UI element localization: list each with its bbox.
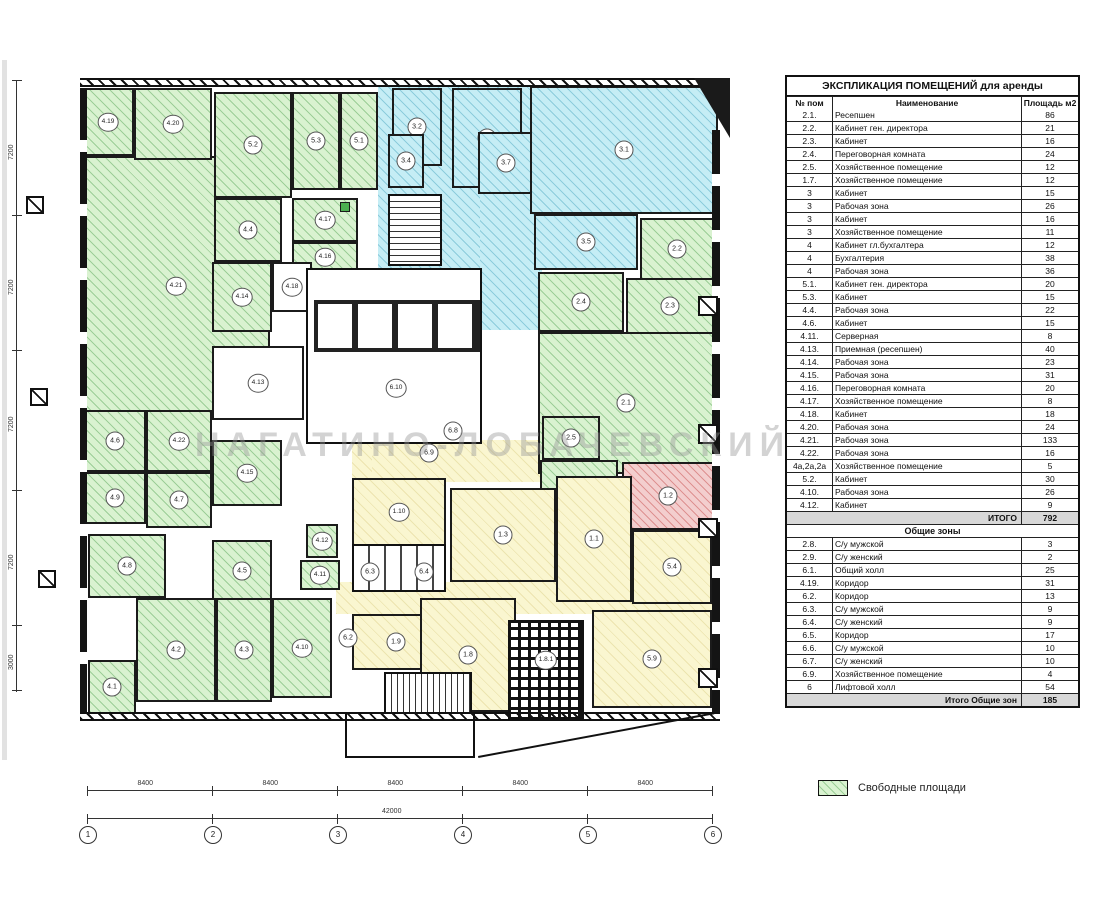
cell-area: 40 — [1022, 343, 1078, 355]
table-row: 6.9.Хозяйственное помещение4 — [787, 667, 1078, 680]
cell-name: Лифтовой холл — [833, 681, 1022, 693]
cell-number: 6 — [787, 681, 833, 693]
cell-area: 10 — [1022, 642, 1078, 654]
cell-name: Рабочая зона — [833, 447, 1022, 459]
dim-line-2 — [87, 818, 713, 819]
cell-number: 4.20. — [787, 421, 833, 433]
dim-tick-left — [12, 690, 22, 691]
cell-area: 8 — [1022, 395, 1078, 407]
cell-area: 24 — [1022, 421, 1078, 433]
cell-area: 25 — [1022, 564, 1078, 576]
dim-segment-label: 8400 — [638, 780, 654, 787]
col-number: № пом — [787, 97, 833, 109]
cell-area: 8 — [1022, 330, 1078, 342]
cell-name: Кабинет — [833, 291, 1022, 303]
dim-tick-left — [12, 490, 22, 491]
cell-name: Кабинет — [833, 473, 1022, 485]
cell-number: 6.9. — [787, 668, 833, 680]
cell-number: 5.3. — [787, 291, 833, 303]
table-row: 4.19.Коридор31 — [787, 576, 1078, 589]
cell-number: 4а,2а,2а — [787, 460, 833, 472]
dim-tick — [337, 786, 338, 796]
cell-number: 3 — [787, 213, 833, 225]
cell-number: 4.4. — [787, 304, 833, 316]
table-row: 4.22.Рабочая зона16 — [787, 446, 1078, 459]
cell-name: С/у женский — [833, 616, 1022, 628]
cell-number: 4.19. — [787, 577, 833, 589]
cell-area: 20 — [1022, 382, 1078, 394]
table-row: 6.6.С/у мужской10 — [787, 641, 1078, 654]
cell-area: 23 — [1022, 356, 1078, 368]
cell-area: 15 — [1022, 317, 1078, 329]
dim-segment-label-left: 7200 — [8, 279, 15, 295]
cell-name: Кабинет гл.бухгалтера — [833, 239, 1022, 251]
cell-name: Рабочая зона — [833, 421, 1022, 433]
table-total-row: Итого Общие зон185 — [787, 693, 1078, 706]
cell-number: 4.13. — [787, 343, 833, 355]
cell-number: 4 — [787, 252, 833, 264]
dim-segment-label: 8400 — [263, 780, 279, 787]
cell-area: 54 — [1022, 681, 1078, 693]
cell-area: 9 — [1022, 603, 1078, 615]
dim-segment-label-left: 7200 — [8, 554, 15, 570]
table-row: 1.7.Хозяйственное помещение12 — [787, 173, 1078, 186]
cell-number: 4.18. — [787, 408, 833, 420]
cell-name: Переговорная комната — [833, 382, 1022, 394]
cell-name: Хозяйственное помещение — [833, 460, 1022, 472]
cell-name: Бухгалтерия — [833, 252, 1022, 264]
cell-number: 4 — [787, 239, 833, 251]
dim-segment-label-left: 3000 — [8, 654, 15, 670]
table-row: 4.18.Кабинет18 — [787, 407, 1078, 420]
cell-area: 86 — [1022, 109, 1078, 121]
total-area: 185 — [1022, 694, 1078, 706]
cell-number: 4.6. — [787, 317, 833, 329]
cell-name: Рабочая зона — [833, 434, 1022, 446]
dim-tick — [87, 786, 88, 796]
cell-number: 4 — [787, 265, 833, 277]
cell-name: Рабочая зона — [833, 356, 1022, 368]
dim-tick-left — [12, 350, 22, 351]
table-row: 6.1.Общий холл25 — [787, 563, 1078, 576]
cell-area: 9 — [1022, 616, 1078, 628]
cell-name: Кабинет ген. директора — [833, 278, 1022, 290]
cell-number: 2.8. — [787, 538, 833, 550]
cell-number: 4.12. — [787, 499, 833, 511]
dim-segment-label-left: 7200 — [8, 144, 15, 160]
table-total-row: ИТОГО792 — [787, 511, 1078, 524]
dim-tick-left — [12, 80, 22, 81]
floor-plan-page: 4.214.194.205.25.35.14.44.174.164.144.18… — [0, 0, 1100, 900]
table-row: 3Кабинет16 — [787, 212, 1078, 225]
cell-number: 4.16. — [787, 382, 833, 394]
cell-area: 16 — [1022, 447, 1078, 459]
cell-number: 6.1. — [787, 564, 833, 576]
dim-segment-label: 8400 — [138, 780, 154, 787]
cell-name: Хозяйственное помещение — [833, 226, 1022, 238]
cell-area: 5 — [1022, 460, 1078, 472]
cell-number: 3 — [787, 200, 833, 212]
cell-area: 16 — [1022, 213, 1078, 225]
table-row: 2.9.С/у женский2 — [787, 550, 1078, 563]
dim-tick — [712, 786, 713, 796]
cell-area: 24 — [1022, 148, 1078, 160]
dim-tick-left — [12, 215, 22, 216]
table-row: 2.1.Ресепшен86 — [787, 109, 1078, 121]
table-row: 2.5.Хозяйственное помещение12 — [787, 160, 1078, 173]
cell-area: 133 — [1022, 434, 1078, 446]
cell-name: Коридор — [833, 590, 1022, 602]
cell-number: 6.5. — [787, 629, 833, 641]
cell-area: 31 — [1022, 577, 1078, 589]
cell-area: 17 — [1022, 629, 1078, 641]
table-row: 2.3.Кабинет16 — [787, 134, 1078, 147]
table-row: 6.4.С/у женский9 — [787, 615, 1078, 628]
dim-tick — [587, 814, 588, 824]
table-row: 6.5.Коридор17 — [787, 628, 1078, 641]
cell-area: 13 — [1022, 590, 1078, 602]
cell-number: 2.1. — [787, 109, 833, 121]
cell-area: 15 — [1022, 291, 1078, 303]
cell-name: С/у мужской — [833, 603, 1022, 615]
col-area: Площадь м2 — [1022, 97, 1078, 109]
dim-line-left — [16, 80, 17, 692]
cell-name: Хозяйственное помещение — [833, 668, 1022, 680]
table-row: 4.14.Рабочая зона23 — [787, 355, 1078, 368]
table-row: 4.20.Рабочая зона24 — [787, 420, 1078, 433]
table-row: 2.2.Кабинет ген. директора21 — [787, 121, 1078, 134]
cell-name: С/у женский — [833, 655, 1022, 667]
legend-label: Свободные площади — [858, 782, 966, 794]
cell-area: 9 — [1022, 499, 1078, 511]
table-row: 2.4.Переговорная комната24 — [787, 147, 1078, 160]
table-header: № пом Наименование Площадь м2 — [787, 96, 1078, 109]
legend-free-area-swatch — [818, 780, 848, 796]
cell-name: Коридор — [833, 629, 1022, 641]
cell-name: С/у мужской — [833, 538, 1022, 550]
cell-area: 3 — [1022, 538, 1078, 550]
table-section-header: Общие зоны — [787, 524, 1078, 537]
cell-area: 36 — [1022, 265, 1078, 277]
table-row: 5.3.Кабинет15 — [787, 290, 1078, 303]
dim-tick — [712, 814, 713, 824]
table-row: 4Кабинет гл.бухгалтера12 — [787, 238, 1078, 251]
cell-name: Рабочая зона — [833, 486, 1022, 498]
table-row: 3Рабочая зона26 — [787, 199, 1078, 212]
grid-bubble-2: 2 — [204, 826, 222, 844]
cell-number: 2.9. — [787, 551, 833, 563]
cell-number: 4.11. — [787, 330, 833, 342]
table-row: 4Рабочая зона36 — [787, 264, 1078, 277]
cell-name: Переговорная комната — [833, 148, 1022, 160]
dim-tick — [87, 814, 88, 824]
dim-tick — [212, 786, 213, 796]
cell-name: Рабочая зона — [833, 304, 1022, 316]
dim-tick — [212, 814, 213, 824]
cell-name: Кабинет — [833, 213, 1022, 225]
total-area: 792 — [1022, 512, 1078, 524]
cell-area: 12 — [1022, 174, 1078, 186]
dim-tick — [587, 786, 588, 796]
table-row: 2.8.С/у мужской3 — [787, 537, 1078, 550]
legend: Свободные площади — [818, 780, 966, 796]
cell-number: 2.4. — [787, 148, 833, 160]
table-row: 6Лифтовой холл54 — [787, 680, 1078, 693]
cell-number: 2.2. — [787, 122, 833, 134]
cell-number: 4.17. — [787, 395, 833, 407]
cell-area: 26 — [1022, 486, 1078, 498]
cell-area: 30 — [1022, 473, 1078, 485]
cell-name: Кабинет — [833, 187, 1022, 199]
total-label: ИТОГО — [787, 512, 1022, 524]
cell-name: Рабочая зона — [833, 200, 1022, 212]
cell-name: Кабинет — [833, 408, 1022, 420]
table-row: 6.2.Коридор13 — [787, 589, 1078, 602]
cell-number: 6.3. — [787, 603, 833, 615]
cell-number: 1.7. — [787, 174, 833, 186]
cell-name: Коридор — [833, 577, 1022, 589]
cell-area: 20 — [1022, 278, 1078, 290]
cell-area: 31 — [1022, 369, 1078, 381]
table-row: 3Хозяйственное помещение11 — [787, 225, 1078, 238]
cell-area: 15 — [1022, 187, 1078, 199]
dim-tick-left — [12, 625, 22, 626]
grid-bubble-6: 6 — [704, 826, 722, 844]
cell-number: 5.2. — [787, 473, 833, 485]
cell-number: 6.4. — [787, 616, 833, 628]
dim-segment-label: 8400 — [388, 780, 404, 787]
col-name: Наименование — [833, 97, 1022, 109]
cell-area: 18 — [1022, 408, 1078, 420]
cell-name: Приемная (ресепшен) — [833, 343, 1022, 355]
table-row: 4.10.Рабочая зона26 — [787, 485, 1078, 498]
cell-number: 3 — [787, 187, 833, 199]
cell-name: Серверная — [833, 330, 1022, 342]
cell-area: 16 — [1022, 135, 1078, 147]
watermark: НАГАТИНО-ЛОБАЧЕВСКИЙ — [195, 426, 791, 465]
cell-area: 22 — [1022, 304, 1078, 316]
table-row: 5.2.Кабинет30 — [787, 472, 1078, 485]
cell-number: 2.5. — [787, 161, 833, 173]
cell-number: 6.2. — [787, 590, 833, 602]
table-row: 4Бухгалтерия38 — [787, 251, 1078, 264]
grid-bubble-3: 3 — [329, 826, 347, 844]
cell-area: 11 — [1022, 226, 1078, 238]
table-row: 4.11.Серверная8 — [787, 329, 1078, 342]
cell-number: 4.15. — [787, 369, 833, 381]
cell-name: Кабинет — [833, 135, 1022, 147]
cell-name: Хозяйственное помещение — [833, 395, 1022, 407]
dim-tick — [462, 786, 463, 796]
dim-segment-label: 8400 — [513, 780, 529, 787]
table-row: 4.15.Рабочая зона31 — [787, 368, 1078, 381]
table-rows: 2.1.Ресепшен862.2.Кабинет ген. директора… — [787, 109, 1078, 706]
total-label: Итого Общие зон — [787, 694, 1022, 706]
dim-line-1 — [87, 790, 713, 791]
cell-area: 38 — [1022, 252, 1078, 264]
cell-number: 6.7. — [787, 655, 833, 667]
cell-area: 10 — [1022, 655, 1078, 667]
cell-area: 2 — [1022, 551, 1078, 563]
grid-bubble-1: 1 — [79, 826, 97, 844]
cell-number: 5.1. — [787, 278, 833, 290]
cell-name: Общий холл — [833, 564, 1022, 576]
cell-name: Хозяйственное помещение — [833, 161, 1022, 173]
cell-number: 4.10. — [787, 486, 833, 498]
cell-area: 26 — [1022, 200, 1078, 212]
cell-name: Хозяйственное помещение — [833, 174, 1022, 186]
table-row: 5.1.Кабинет ген. директора20 — [787, 277, 1078, 290]
cell-name: Кабинет — [833, 317, 1022, 329]
dim-total: 42000 — [382, 808, 401, 815]
cell-area: 12 — [1022, 161, 1078, 173]
cell-name: С/у мужской — [833, 642, 1022, 654]
dim-tick — [337, 814, 338, 824]
cell-name: Кабинет — [833, 499, 1022, 511]
cell-name: Ресепшен — [833, 109, 1022, 121]
table-row: 4.12.Кабинет9 — [787, 498, 1078, 511]
dim-segment-label-left: 7200 — [8, 416, 15, 432]
table-row: 4.17.Хозяйственное помещение8 — [787, 394, 1078, 407]
cell-area: 4 — [1022, 668, 1078, 680]
explication-table: ЭКСПЛИКАЦИЯ ПОМЕЩЕНИЙ для аренды № пом Н… — [785, 75, 1080, 708]
grid-bubble-4: 4 — [454, 826, 472, 844]
dim-tick — [462, 814, 463, 824]
cell-area: 12 — [1022, 239, 1078, 251]
cell-name: С/у женский — [833, 551, 1022, 563]
table-row: 6.7.С/у женский10 — [787, 654, 1078, 667]
cell-name: Рабочая зона — [833, 369, 1022, 381]
cell-name: Рабочая зона — [833, 265, 1022, 277]
cell-number: 4.14. — [787, 356, 833, 368]
table-row: 4.16.Переговорная комната20 — [787, 381, 1078, 394]
table-row: 4.21.Рабочая зона133 — [787, 433, 1078, 446]
table-title: ЭКСПЛИКАЦИЯ ПОМЕЩЕНИЙ для аренды — [787, 77, 1078, 96]
table-row: 3Кабинет15 — [787, 186, 1078, 199]
table-row: 4.6.Кабинет15 — [787, 316, 1078, 329]
cell-number: 6.6. — [787, 642, 833, 654]
cell-number: 3 — [787, 226, 833, 238]
cell-number: 2.3. — [787, 135, 833, 147]
cell-name: Кабинет ген. директора — [833, 122, 1022, 134]
table-row: 6.3.С/у мужской9 — [787, 602, 1078, 615]
table-row: 4а,2а,2аХозяйственное помещение5 — [787, 459, 1078, 472]
grid-bubble-5: 5 — [579, 826, 597, 844]
cell-area: 21 — [1022, 122, 1078, 134]
cell-number: 4.22. — [787, 447, 833, 459]
table-row: 4.13.Приемная (ресепшен)40 — [787, 342, 1078, 355]
cell-number: 4.21. — [787, 434, 833, 446]
table-row: 4.4.Рабочая зона22 — [787, 303, 1078, 316]
